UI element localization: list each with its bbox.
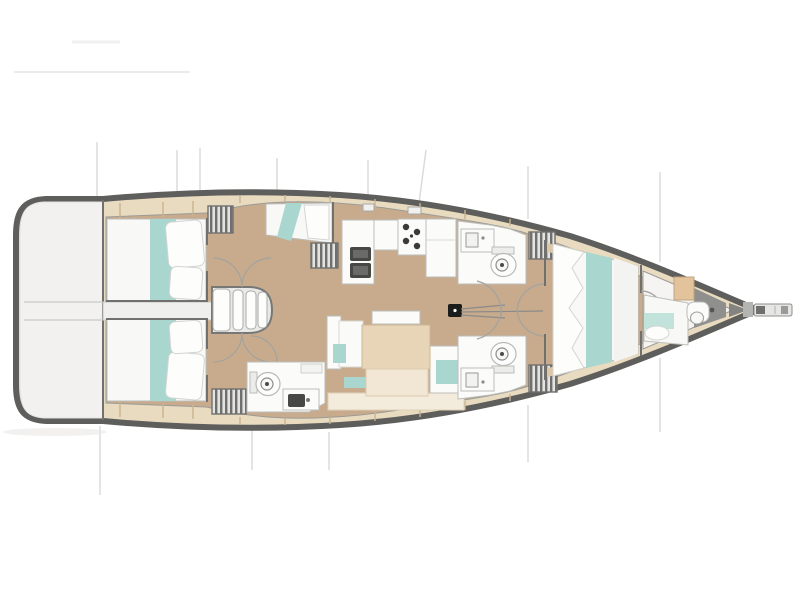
dining-table bbox=[362, 325, 430, 369]
aft-head-starboard bbox=[247, 362, 325, 412]
bowsprit bbox=[743, 302, 792, 317]
companionway-steps bbox=[212, 287, 272, 333]
anchor-roller bbox=[756, 306, 765, 314]
cabinet bbox=[674, 277, 694, 300]
burner bbox=[414, 243, 420, 249]
hanging-locker bbox=[208, 206, 233, 233]
refrigerator-counter bbox=[426, 219, 456, 277]
bed-runner bbox=[586, 252, 612, 368]
settee-cushion bbox=[333, 344, 346, 363]
pillow bbox=[169, 320, 203, 354]
washbasin bbox=[466, 373, 478, 387]
pillow bbox=[165, 352, 205, 401]
forepeak-cabin bbox=[641, 266, 748, 355]
settee-cushion bbox=[436, 360, 461, 384]
stern-shadow bbox=[3, 428, 107, 436]
settee-cushion bbox=[344, 377, 366, 388]
swim-platform bbox=[20, 201, 103, 419]
pillow bbox=[169, 266, 203, 300]
forward-cabin bbox=[545, 241, 638, 379]
burner bbox=[403, 224, 409, 230]
yacht-floorplan-page bbox=[0, 0, 803, 602]
pillow bbox=[165, 220, 205, 269]
washbasin bbox=[288, 394, 305, 407]
burner bbox=[403, 238, 409, 244]
louvered-locker bbox=[311, 243, 338, 268]
hanging-locker bbox=[212, 389, 246, 414]
burner bbox=[414, 229, 420, 235]
yacht-floorplan bbox=[0, 0, 803, 602]
washbasin bbox=[466, 233, 478, 247]
